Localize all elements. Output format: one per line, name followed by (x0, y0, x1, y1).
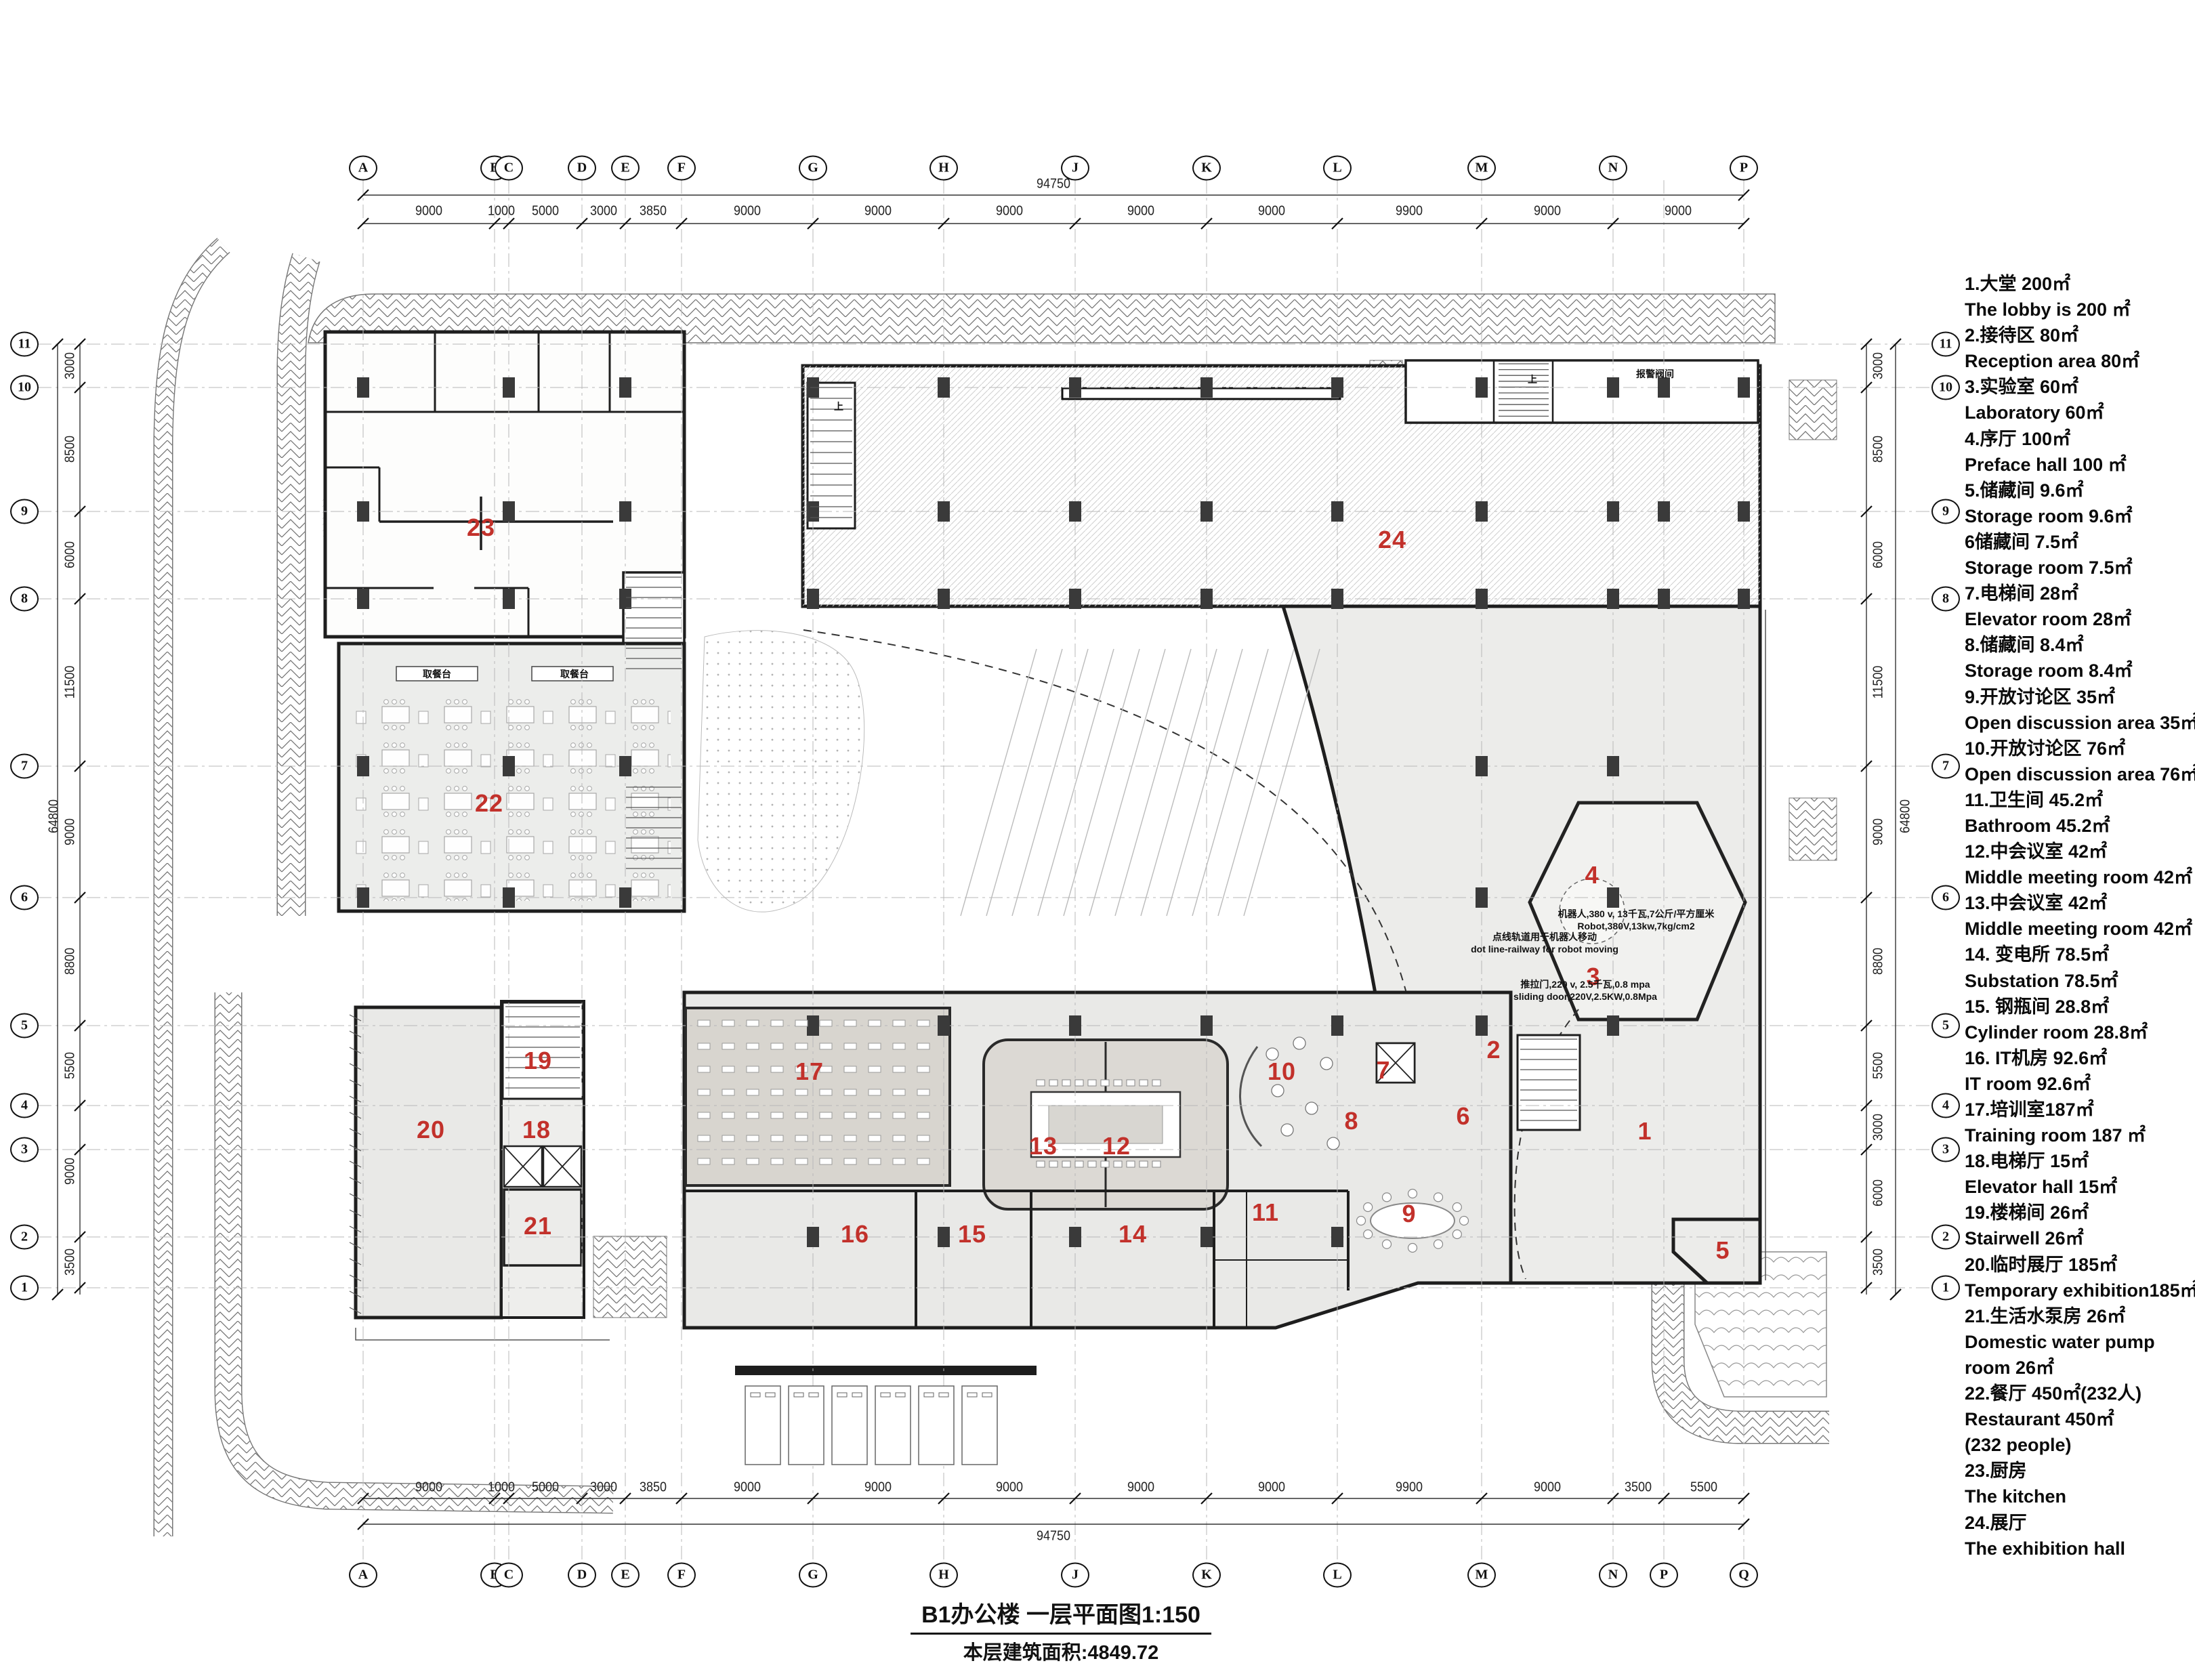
training-seat (893, 1135, 905, 1141)
structural-column (503, 887, 515, 908)
grid-bubble-bottom-K: K (1192, 1563, 1221, 1588)
plan-annotation: 上 (1528, 373, 1537, 385)
dimension-label: 6000 (1871, 541, 1887, 568)
grid-bubble-bottom-P: P (1650, 1563, 1678, 1588)
training-seat (698, 1112, 710, 1118)
training-seat (771, 1135, 783, 1141)
room-number-24: 24 (1378, 526, 1406, 554)
structural-column (503, 589, 515, 609)
training-seat (698, 1066, 710, 1072)
chair (1383, 1193, 1392, 1202)
training-seat (747, 1112, 759, 1118)
dimension-label: 9000 (1127, 1480, 1154, 1496)
legend-line: 23.厨房 (1965, 1458, 2195, 1484)
room-number-17: 17 (795, 1057, 824, 1086)
dimension-label: 3000 (590, 204, 617, 219)
legend-line: Storage room 8.4㎡ (1965, 658, 2195, 684)
structural-column (357, 756, 369, 776)
parking-stall (919, 1386, 954, 1465)
room-number-14: 14 (1119, 1220, 1147, 1248)
plan-annotation: 报警阀间 (1636, 368, 1674, 380)
grid-bubble-left-7: 7 (10, 754, 39, 779)
legend-line: IT room 92.6㎡ (1965, 1071, 2195, 1097)
legend-line: 14. 变电所 78.5㎡ (1965, 942, 2195, 967)
training-seat (820, 1135, 832, 1141)
legend-line: Open discussion area 35㎡ (1965, 710, 2195, 736)
structural-column (1738, 589, 1750, 609)
dimension-label: 5500 (63, 1052, 79, 1079)
plan-annotation: 上 (834, 400, 843, 413)
room-number-18: 18 (522, 1116, 551, 1144)
legend-line: 5.储藏间 9.6㎡ (1965, 478, 2195, 503)
meeting-chair (1062, 1080, 1070, 1086)
structural-column (503, 377, 515, 398)
landscape-line (1244, 649, 1320, 916)
dimension-label: 9000 (1534, 204, 1561, 219)
room-number-21: 21 (524, 1212, 552, 1240)
landscape-line (986, 649, 1062, 916)
structural-column (1658, 377, 1670, 398)
legend-line: 11.卫生间 45.2㎡ (1965, 787, 2195, 813)
overall-dimension: 64800 (47, 799, 62, 833)
room-number-23: 23 (467, 513, 495, 542)
dimension-label: 1000 (488, 1480, 515, 1496)
structural-column (619, 887, 631, 908)
dimension-label: 9000 (1258, 1480, 1285, 1496)
structural-column (1476, 377, 1488, 398)
room-number-13: 13 (1029, 1132, 1058, 1160)
training-seat (869, 1089, 881, 1095)
legend-line: 19.楼梯间 26㎡ (1965, 1200, 2195, 1225)
grid-bubble-left-8: 8 (10, 587, 39, 612)
dimension-label: 9000 (864, 1480, 892, 1496)
grid-bubble-bottom-Q: Q (1730, 1563, 1758, 1588)
grid-bubble-top-P: P (1730, 156, 1758, 181)
legend-line: Bathroom 45.2㎡ (1965, 813, 2195, 839)
legend-line: 22.餐厅 450㎡(232人) (1965, 1381, 2195, 1406)
lounge-seat (1293, 1037, 1305, 1049)
legend-line: room 26㎡ (1965, 1355, 2195, 1381)
legend-line: Reception area 80㎡ (1965, 348, 2195, 374)
training-seat (844, 1020, 856, 1026)
dimension-label: 9000 (734, 1480, 761, 1496)
landscape-line (1012, 649, 1088, 916)
legend-line: 20.临时展厅 185㎡ (1965, 1252, 2195, 1278)
overall-dimension: 94750 (1037, 1529, 1070, 1545)
lounge-seat (1272, 1085, 1284, 1097)
structural-column (503, 756, 515, 776)
plan-annotation: 机器人,380 v, 13千瓦,7公斤/平方厘米Robot,380V,13kw,… (1558, 908, 1715, 932)
training-seat (869, 1135, 881, 1141)
structural-column (1738, 377, 1750, 398)
chair (1357, 1217, 1366, 1225)
legend-line: Restaurant 450㎡ (1965, 1406, 2195, 1432)
training-seat (698, 1089, 710, 1095)
chair (1364, 1203, 1373, 1212)
dimension-label: 9000 (63, 1158, 79, 1185)
legend-line: Substation 78.5㎡ (1965, 968, 2195, 994)
training-seat (771, 1020, 783, 1026)
structural-column (1331, 1015, 1343, 1036)
dimension-label: 3000 (1871, 1114, 1887, 1141)
training-seat (844, 1043, 856, 1049)
landscape-line (1064, 649, 1140, 916)
paving-patch (593, 1236, 667, 1318)
drawing-area-note: 本层建筑面积:4849.72 (911, 1637, 1211, 1665)
legend-line: 21.生活水泵房 26㎡ (1965, 1303, 2195, 1329)
grid-bubble-right-6: 6 (1931, 885, 1960, 910)
room-number-12: 12 (1102, 1132, 1131, 1160)
room-number-15: 15 (958, 1220, 986, 1248)
structural-column (1331, 501, 1343, 522)
grid-bubble-right-8: 8 (1931, 587, 1960, 612)
grid-bubble-left-5: 5 (10, 1013, 39, 1038)
dimension-label: 9000 (1871, 818, 1887, 845)
training-seat (722, 1066, 734, 1072)
legend-line: 10.开放讨论区 76㎡ (1965, 736, 2195, 761)
grid-bubble-bottom-M: M (1467, 1563, 1496, 1588)
structural-column (1331, 589, 1343, 609)
grid-bubble-left-4: 4 (10, 1093, 39, 1118)
training-seat (869, 1066, 881, 1072)
structural-column (619, 589, 631, 609)
meeting-chair (1140, 1080, 1148, 1086)
grid-bubble-right-10: 10 (1931, 375, 1960, 400)
dimension-label: 3500 (1871, 1248, 1887, 1276)
structural-column (1200, 377, 1213, 398)
chair (1408, 1190, 1417, 1198)
dimension-label: 9000 (63, 818, 79, 845)
grid-bubble-left-9: 9 (10, 499, 39, 524)
room-number-5: 5 (1715, 1236, 1730, 1265)
dimension-label: 5000 (532, 204, 559, 219)
room-number-22: 22 (475, 789, 503, 818)
legend-panel: 1.大堂 200㎡The lobby is 200 ㎡2.接待区 80㎡Rece… (1965, 271, 2195, 1561)
site-wall-bar (735, 1366, 1037, 1375)
legend-line: 1.大堂 200㎡ (1965, 271, 2195, 297)
grid-bubble-bottom-C: C (495, 1563, 523, 1588)
training-seat (917, 1066, 929, 1072)
structural-column (807, 501, 819, 522)
grid-bubble-top-K: K (1192, 156, 1221, 181)
grid-bubble-top-M: M (1467, 156, 1496, 181)
training-seat (893, 1158, 905, 1164)
legend-line: Elevator room 28㎡ (1965, 606, 2195, 632)
structural-column (938, 589, 950, 609)
structural-column (357, 887, 369, 908)
structural-column (1607, 589, 1619, 609)
meeting-chair (1088, 1080, 1096, 1086)
legend-line: 17.培训室187㎡ (1965, 1097, 2195, 1122)
training-seat (722, 1135, 734, 1141)
grid-bubble-left-2: 2 (10, 1225, 39, 1250)
dimension-label: 5500 (1871, 1052, 1887, 1079)
structural-column (1331, 1227, 1343, 1247)
grid-bubble-left-3: 3 (10, 1137, 39, 1162)
dimension-label: 6000 (63, 541, 79, 568)
legend-line: 15. 钢瓶间 28.8㎡ (1965, 994, 2195, 1020)
grid-bubble-right-11: 11 (1931, 332, 1960, 357)
plan-annotation: 取餐台 (560, 668, 589, 680)
training-seat (795, 1043, 808, 1049)
meeting-chair (1114, 1080, 1122, 1086)
room-number-11: 11 (1252, 1198, 1279, 1227)
grid-bubble-bottom-G: G (799, 1563, 827, 1588)
legend-line: Training room 187 ㎡ (1965, 1122, 2195, 1148)
dimension-label: 9000 (1534, 1480, 1561, 1496)
structural-column (1607, 501, 1619, 522)
legend-line: Storage room 7.5㎡ (1965, 555, 2195, 581)
grid-bubble-right-4: 4 (1931, 1093, 1960, 1118)
meeting-chair (1152, 1080, 1161, 1086)
dimension-label: 9000 (864, 204, 892, 219)
training-seat (747, 1089, 759, 1095)
legend-line: 6储藏间 7.5㎡ (1965, 529, 2195, 555)
training-seat (795, 1135, 808, 1141)
grid-bubble-right-3: 3 (1931, 1137, 1960, 1162)
meeting-chair (1152, 1161, 1161, 1167)
chair (1364, 1230, 1373, 1239)
legend-line: 24.展厅 (1965, 1510, 2195, 1536)
structural-column (1476, 589, 1488, 609)
legend-line: 2.接待区 80㎡ (1965, 322, 2195, 348)
paving-patch (1789, 798, 1837, 860)
dimension-label: 5500 (1690, 1480, 1717, 1496)
landscape-line (1218, 649, 1294, 916)
structural-column (1476, 1015, 1488, 1036)
structural-column (1476, 501, 1488, 522)
structural-column (807, 1227, 819, 1247)
parking-stall (789, 1386, 824, 1465)
training-seat (698, 1158, 710, 1164)
grid-bubble-top-A: A (349, 156, 377, 181)
legend-line: 12.中会议室 42㎡ (1965, 839, 2195, 864)
training-seat (844, 1135, 856, 1141)
room-number-2: 2 (1486, 1036, 1501, 1064)
plan-annotation: 点线轨道用于机器人移动dot line-railway for robot mo… (1471, 931, 1618, 955)
structural-column (1069, 1227, 1081, 1247)
road-paving (291, 257, 306, 916)
structural-column (807, 1015, 819, 1036)
training-seat (820, 1020, 832, 1026)
legend-line: 7.电梯间 28㎡ (1965, 581, 2195, 606)
grid-bubble-bottom-A: A (349, 1563, 377, 1588)
meeting-chair (1037, 1161, 1045, 1167)
legend-line: 3.实验室 60㎡ (1965, 374, 2195, 400)
training-seat (795, 1089, 808, 1095)
grid-bubble-top-J: J (1061, 156, 1089, 181)
structural-column (1069, 377, 1081, 398)
grid-bubble-right-7: 7 (1931, 754, 1960, 779)
structural-column (619, 501, 631, 522)
south-porch-line (356, 1328, 610, 1340)
dimension-label: 5000 (532, 1480, 559, 1496)
structural-column (938, 377, 950, 398)
meeting-chair (1127, 1080, 1135, 1086)
dimension-label: 9000 (996, 1480, 1023, 1496)
dimension-label: 3850 (640, 1480, 667, 1496)
room-number-20: 20 (417, 1116, 445, 1144)
floorplan-drawing (0, 0, 2195, 1680)
dimension-label: 8500 (1871, 436, 1887, 463)
training-seat (747, 1135, 759, 1141)
lounge-seat (1320, 1057, 1333, 1070)
training-seat (820, 1158, 832, 1164)
structural-column (938, 501, 950, 522)
structural-column (619, 377, 631, 398)
training-seat (722, 1112, 734, 1118)
training-seat (893, 1020, 905, 1026)
grid-bubble-bottom-E: E (611, 1563, 640, 1588)
legend-line: Domestic water pump (1965, 1329, 2195, 1355)
grid-bubble-bottom-H: H (929, 1563, 958, 1588)
training-seat (844, 1066, 856, 1072)
training-seat (844, 1158, 856, 1164)
legend-line: Elevator hall 15㎡ (1965, 1174, 2195, 1200)
legend-line: Laboratory 60㎡ (1965, 400, 2195, 425)
room-number-9: 9 (1402, 1200, 1416, 1228)
training-seat (722, 1043, 734, 1049)
training-seat (747, 1020, 759, 1026)
grid-bubble-top-H: H (929, 156, 958, 181)
dimension-label: 3500 (63, 1248, 79, 1276)
structural-column (807, 589, 819, 609)
landscape-line (1167, 649, 1242, 916)
meeting-chair (1075, 1080, 1083, 1086)
training-seat (820, 1112, 832, 1118)
training-seat (869, 1043, 881, 1049)
landscape-line (1141, 649, 1217, 916)
chair (1383, 1240, 1392, 1248)
meeting-chair (1049, 1080, 1058, 1086)
training-seat (698, 1043, 710, 1049)
training-seat (917, 1112, 929, 1118)
legend-line: Temporary exhibition185㎡ (1965, 1278, 2195, 1303)
meeting-chair (1062, 1161, 1070, 1167)
room-number-8: 8 (1344, 1107, 1358, 1135)
room-number-7: 7 (1376, 1056, 1390, 1085)
training-seat (869, 1020, 881, 1026)
overall-dimension: 94750 (1037, 177, 1070, 192)
training-seat (917, 1089, 929, 1095)
chair (1460, 1217, 1469, 1225)
training-seat (893, 1066, 905, 1072)
parking-stall (962, 1386, 997, 1465)
parking-stall (875, 1386, 911, 1465)
legend-line: Middle meeting room 42㎡ (1965, 916, 2195, 942)
landscape-line (1115, 649, 1191, 916)
legend-line: (232 people) (1965, 1432, 2195, 1458)
structural-column (1069, 501, 1081, 522)
structural-column (1476, 887, 1488, 908)
dimension-label: 8800 (1871, 948, 1887, 975)
chair (1452, 1203, 1461, 1212)
legend-line: The kitchen (1965, 1484, 2195, 1509)
training-seat (893, 1043, 905, 1049)
meeting-chair (1101, 1161, 1109, 1167)
training-seat (869, 1158, 881, 1164)
dimension-label: 9900 (1396, 1480, 1423, 1496)
floorplan-canvas: B1办公楼 一层平面图1:150 本层建筑面积:4849.72 1.大堂 200… (0, 0, 2195, 1680)
alarm-valve-room (1406, 360, 1758, 423)
legend-line: 4.序厅 100㎡ (1965, 426, 2195, 452)
dimension-label: 11500 (63, 666, 79, 699)
structural-column (1658, 589, 1670, 609)
structural-column (1200, 1227, 1213, 1247)
temporary-exhibition-room (356, 1007, 501, 1318)
grid-bubble-left-1: 1 (10, 1276, 39, 1301)
parking-stall (745, 1386, 780, 1465)
chair (1408, 1244, 1417, 1253)
training-seat (771, 1089, 783, 1095)
grid-bubble-bottom-F: F (667, 1563, 696, 1588)
structural-column (503, 501, 515, 522)
training-seat (722, 1089, 734, 1095)
grid-bubble-bottom-L: L (1323, 1563, 1352, 1588)
legend-line: Storage room 9.6㎡ (1965, 503, 2195, 529)
training-seat (747, 1066, 759, 1072)
grid-bubble-right-1: 1 (1931, 1276, 1960, 1301)
grid-bubble-top-L: L (1323, 156, 1352, 181)
room-number-4: 4 (1585, 861, 1599, 889)
structural-column (1200, 1015, 1213, 1036)
dimension-label: 3000 (1871, 352, 1887, 379)
landscape-line (1038, 649, 1114, 916)
lounge-seat (1327, 1137, 1339, 1150)
structural-column (1476, 756, 1488, 776)
grid-bubble-right-2: 2 (1931, 1225, 1960, 1250)
dimension-label: 9000 (1127, 204, 1154, 219)
training-seat (795, 1158, 808, 1164)
meeting-chair (1075, 1161, 1083, 1167)
plan-annotation: 取餐台 (423, 668, 451, 680)
meeting-chair (1140, 1161, 1148, 1167)
meeting-chair (1101, 1080, 1109, 1086)
chair (1434, 1193, 1443, 1202)
structural-column (1069, 1015, 1081, 1036)
grid-bubble-top-F: F (667, 156, 696, 181)
training-seat (771, 1158, 783, 1164)
training-seat (869, 1112, 881, 1118)
grid-bubble-left-11: 11 (10, 332, 39, 357)
dimension-label: 9000 (1665, 204, 1692, 219)
dimension-label: 3000 (590, 1480, 617, 1496)
dimension-label: 3000 (63, 352, 79, 379)
legend-line: The exhibition hall (1965, 1536, 2195, 1561)
training-seat (747, 1043, 759, 1049)
legend-line: Middle meeting room 42㎡ (1965, 864, 2195, 890)
training-seat (698, 1020, 710, 1026)
training-seat (771, 1066, 783, 1072)
dimension-label: 9000 (734, 204, 761, 219)
grid-bubble-right-5: 5 (1931, 1013, 1960, 1038)
dimension-label: 9000 (415, 1480, 442, 1496)
legend-line: Stairwell 26㎡ (1965, 1225, 2195, 1251)
overall-dimension: 64800 (1898, 799, 1914, 833)
structural-column (1607, 377, 1619, 398)
dimension-label: 3500 (1625, 1480, 1652, 1496)
grid-bubble-left-6: 6 (10, 885, 39, 910)
legend-line: 18.电梯厅 15㎡ (1965, 1148, 2195, 1174)
title-block: B1办公楼 一层平面图1:150 本层建筑面积:4849.72 (911, 1596, 1211, 1665)
chair (1452, 1230, 1461, 1239)
training-seat (917, 1020, 929, 1026)
meeting-chair (1114, 1161, 1122, 1167)
plan-annotation: 推拉门,220 v, 2.5千瓦,0.8 mpasliding door,220… (1513, 978, 1657, 1003)
structural-column (1607, 1015, 1619, 1036)
lounge-seat (1281, 1124, 1293, 1136)
dimension-label: 9000 (415, 204, 442, 219)
